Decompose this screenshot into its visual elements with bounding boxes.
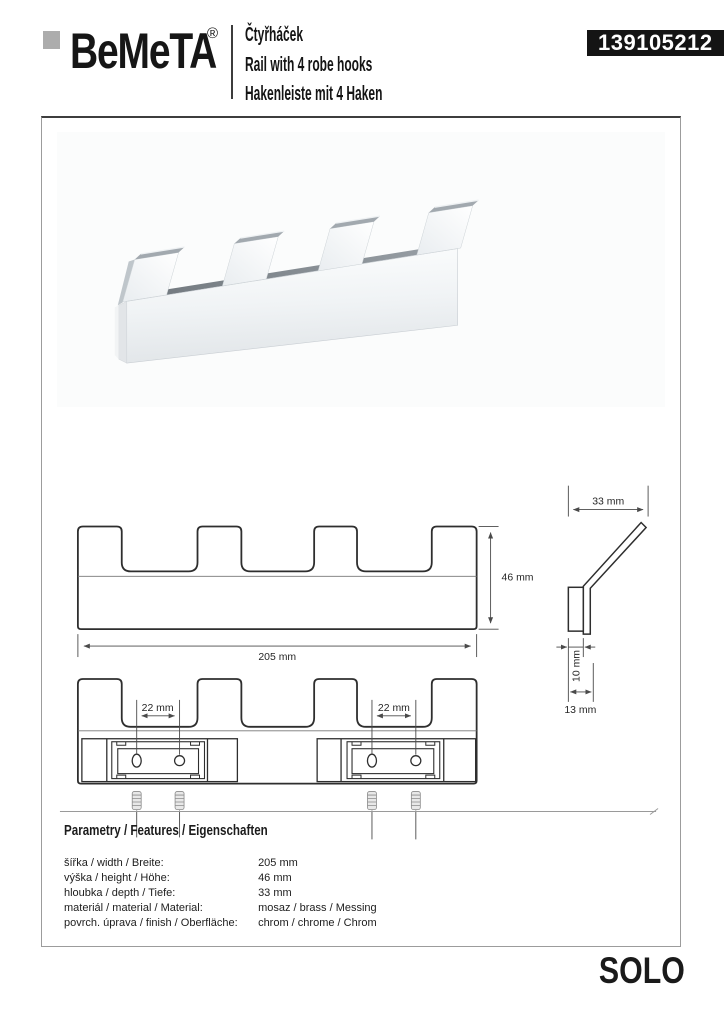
product-title-de: Hakenleiste mit 4 Haken: [245, 80, 382, 110]
technical-drawings-canvas: 46 mm 205 mm 33 mm 10 mm 13 mm: [42, 118, 680, 945]
content-frame: 46 mm 205 mm 33 mm 10 mm 13 mm: [41, 116, 681, 947]
parameter-row: šířka / width / Breite: 205 mm: [64, 856, 377, 871]
mounting-plate-left: [82, 739, 238, 782]
header-divider: [231, 25, 233, 99]
dim-height-label: 46 mm: [502, 572, 534, 583]
parameter-label: výška / height / Höhe:: [64, 871, 255, 886]
parameter-row: materiál / material / Material: mosaz / …: [64, 901, 377, 916]
parameters-heading: Parametry / Features / Eigenschaften: [64, 823, 268, 839]
dim-total-depth-label: 13 mm: [564, 705, 596, 716]
product-code-badge: 139105212: [587, 30, 724, 56]
parameters-table: šířka / width / Breite: 205 mm výška / h…: [64, 856, 377, 931]
parameter-label: hloubka / depth / Tiefe:: [64, 886, 255, 901]
parameter-value: chrom / chrome / Chrom: [258, 917, 377, 929]
side-view-drawing: [568, 523, 646, 635]
front-view-drawing: [78, 527, 477, 630]
series-label: SOLO: [599, 950, 685, 992]
brand-logo: BeMeTA: [70, 26, 216, 76]
product-title-cs: Čtyřháček: [245, 21, 382, 51]
dim-hole-spacing-left-label: 22 mm: [142, 703, 174, 714]
registered-trademark-symbol: ®: [207, 25, 218, 42]
parameter-label: šířka / width / Breite:: [64, 856, 255, 871]
dim-hole-spacing-right-label: 22 mm: [378, 703, 410, 714]
parameter-label: materiál / material / Material:: [64, 901, 255, 916]
product-photo-3d: [57, 132, 665, 407]
parameter-row: výška / height / Höhe: 46 mm: [64, 871, 377, 886]
parameter-row: povrch. úprava / finish / Oberfläche: ch…: [64, 916, 377, 931]
parameter-label: povrch. úprava / finish / Oberfläche:: [64, 916, 255, 931]
dim-width-label: 205 mm: [258, 652, 296, 663]
dim-depth-label: 33 mm: [592, 497, 624, 508]
product-title-block: Čtyřháček Rail with 4 robe hooks Hakenle…: [245, 21, 382, 110]
parameter-value: 205 mm: [258, 857, 298, 869]
parameter-value: 46 mm: [258, 872, 292, 884]
dim-plate-depth-label: 10 mm: [571, 650, 582, 682]
parameter-value: 33 mm: [258, 887, 292, 899]
mounting-plate-right: [317, 739, 476, 782]
parameter-value: mosaz / brass / Messing: [258, 902, 377, 914]
front-view-dimensions: [78, 527, 499, 658]
parameter-row: hloubka / depth / Tiefe: 33 mm: [64, 886, 377, 901]
mounting-view-drawing: [78, 679, 477, 784]
product-title-en: Rail with 4 robe hooks: [245, 51, 382, 81]
brand-square-icon: [43, 31, 60, 49]
datasheet-page: BeMeTA ® Čtyřháček Rail with 4 robe hook…: [0, 0, 724, 1024]
